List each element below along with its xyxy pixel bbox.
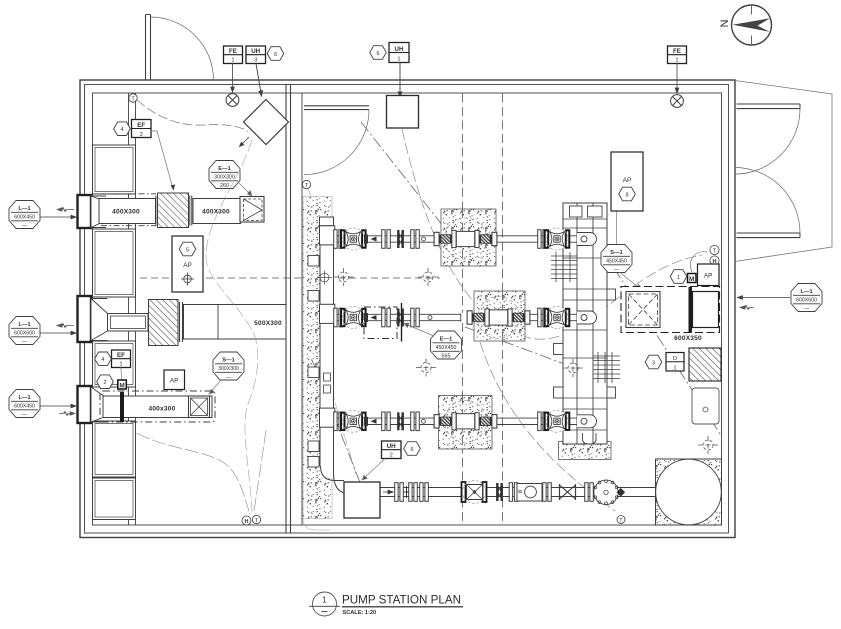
svg-text:PUMP STATION PLAN: PUMP STATION PLAN <box>342 595 461 607</box>
svg-text:1: 1 <box>673 365 676 371</box>
svg-text:UH: UH <box>387 443 396 450</box>
svg-text:6: 6 <box>376 51 379 57</box>
svg-text:450X450: 450X450 <box>606 259 627 265</box>
svg-text:1: 1 <box>231 58 234 64</box>
svg-text:UH: UH <box>251 48 260 55</box>
svg-text:S—1: S—1 <box>222 358 234 364</box>
svg-text:2: 2 <box>140 132 143 138</box>
svg-text:L—1: L—1 <box>800 289 812 295</box>
svg-text:M: M <box>119 382 124 389</box>
svg-text:500X300: 500X300 <box>254 320 282 327</box>
svg-text:—: — <box>22 223 28 229</box>
svg-text:EF: EF <box>117 352 125 359</box>
svg-text:300X300: 300X300 <box>214 175 235 181</box>
svg-text:300X300: 300X300 <box>218 366 239 372</box>
svg-text:—: — <box>804 306 810 312</box>
svg-text:6: 6 <box>274 52 277 58</box>
svg-text:D: D <box>673 356 677 362</box>
svg-text:E—1: E—1 <box>440 337 452 343</box>
svg-text:EF: EF <box>137 122 145 129</box>
svg-text:4: 4 <box>101 357 104 363</box>
svg-text:3: 3 <box>254 58 257 64</box>
svg-text:—: — <box>22 412 28 418</box>
svg-text:600X600: 600X600 <box>14 331 35 337</box>
svg-text:450X450: 450X450 <box>436 345 457 351</box>
svg-text:600X350: 600X350 <box>674 335 702 342</box>
svg-text:1: 1 <box>397 57 400 63</box>
svg-text:T: T <box>713 248 717 254</box>
svg-text:2: 2 <box>103 380 106 386</box>
svg-text:UH: UH <box>395 46 404 53</box>
svg-text:1: 1 <box>677 275 680 281</box>
svg-text:M: M <box>689 276 694 283</box>
svg-text:2: 2 <box>390 453 393 459</box>
svg-text:FE: FE <box>673 48 681 55</box>
svg-text:L—1: L—1 <box>18 322 30 328</box>
svg-text:AP: AP <box>170 378 179 385</box>
svg-text:L—1: L—1 <box>18 395 30 401</box>
svg-text:400X300: 400X300 <box>112 209 140 216</box>
svg-text:400x300: 400x300 <box>148 406 175 413</box>
svg-text:600X450: 600X450 <box>14 215 35 221</box>
svg-text:260: 260 <box>220 183 229 189</box>
svg-text:AP: AP <box>704 273 713 280</box>
svg-text:FE: FE <box>229 48 237 55</box>
svg-text:1: 1 <box>119 362 122 368</box>
svg-text:E—1: E—1 <box>218 166 230 172</box>
svg-text:3: 3 <box>652 360 655 366</box>
svg-text:400X300: 400X300 <box>202 209 230 216</box>
svg-text:N: N <box>718 20 730 28</box>
svg-text:6: 6 <box>410 447 413 453</box>
svg-text:AP: AP <box>623 177 632 184</box>
svg-text:—: — <box>226 374 232 380</box>
svg-text:600X450: 600X450 <box>14 404 35 410</box>
svg-text:SCALE: 1:20: SCALE: 1:20 <box>343 610 377 616</box>
svg-text:—: — <box>614 267 620 273</box>
svg-text:1: 1 <box>322 596 327 605</box>
svg-text:600X600: 600X600 <box>796 298 817 304</box>
svg-text:8: 8 <box>625 192 628 198</box>
svg-text:4: 4 <box>120 127 123 133</box>
svg-text:—: — <box>22 339 28 345</box>
svg-text:AP: AP <box>183 262 192 269</box>
svg-text:5: 5 <box>186 247 189 253</box>
svg-text:565: 565 <box>441 353 450 359</box>
svg-text:H: H <box>245 519 249 525</box>
svg-text:1: 1 <box>675 58 678 64</box>
svg-text:S—1: S—1 <box>610 250 622 256</box>
svg-text:L—1: L—1 <box>18 206 30 212</box>
